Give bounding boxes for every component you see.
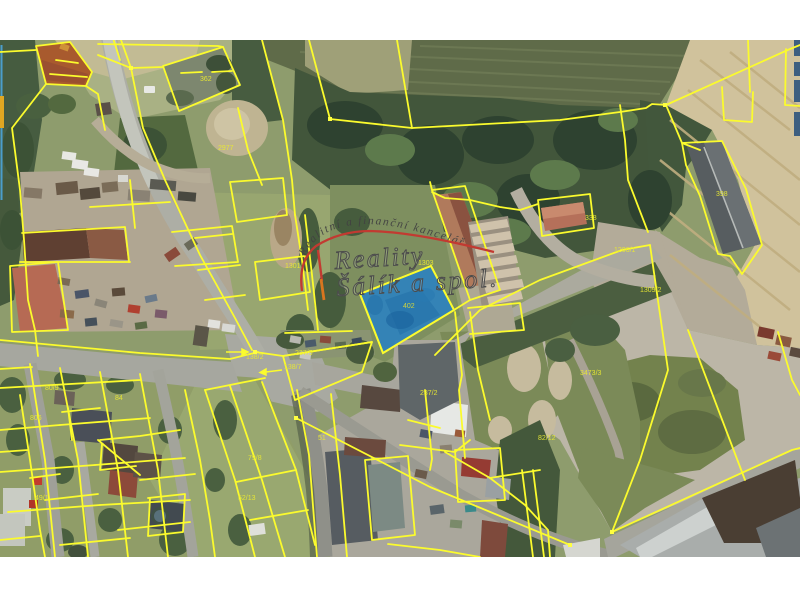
svg-text:84: 84 <box>115 395 123 402</box>
svg-text:402: 402 <box>403 303 415 310</box>
svg-text:237/2: 237/2 <box>420 390 438 397</box>
svg-text:1309/2: 1309/2 <box>640 287 662 294</box>
svg-text:2977: 2977 <box>218 145 234 152</box>
svg-text:806: 806 <box>30 415 42 422</box>
svg-text:138/2: 138/2 <box>246 354 264 361</box>
svg-text:80/9: 80/9 <box>45 385 59 392</box>
svg-text:138/7: 138/7 <box>284 364 302 371</box>
svg-text:3473/3: 3473/3 <box>580 370 602 377</box>
svg-text:237/5: 237/5 <box>295 350 313 357</box>
svg-text:82/12: 82/12 <box>538 435 556 442</box>
svg-text:52/13: 52/13 <box>238 495 256 502</box>
svg-text:398: 398 <box>716 191 728 198</box>
svg-text:49/1: 49/1 <box>35 495 49 502</box>
svg-text:338: 338 <box>585 215 597 222</box>
svg-text:1301: 1301 <box>285 263 301 270</box>
svg-text:1206/1: 1206/1 <box>614 247 636 254</box>
svg-text:51: 51 <box>318 435 326 442</box>
svg-text:79/8: 79/8 <box>248 455 262 462</box>
svg-text:362: 362 <box>200 76 212 83</box>
